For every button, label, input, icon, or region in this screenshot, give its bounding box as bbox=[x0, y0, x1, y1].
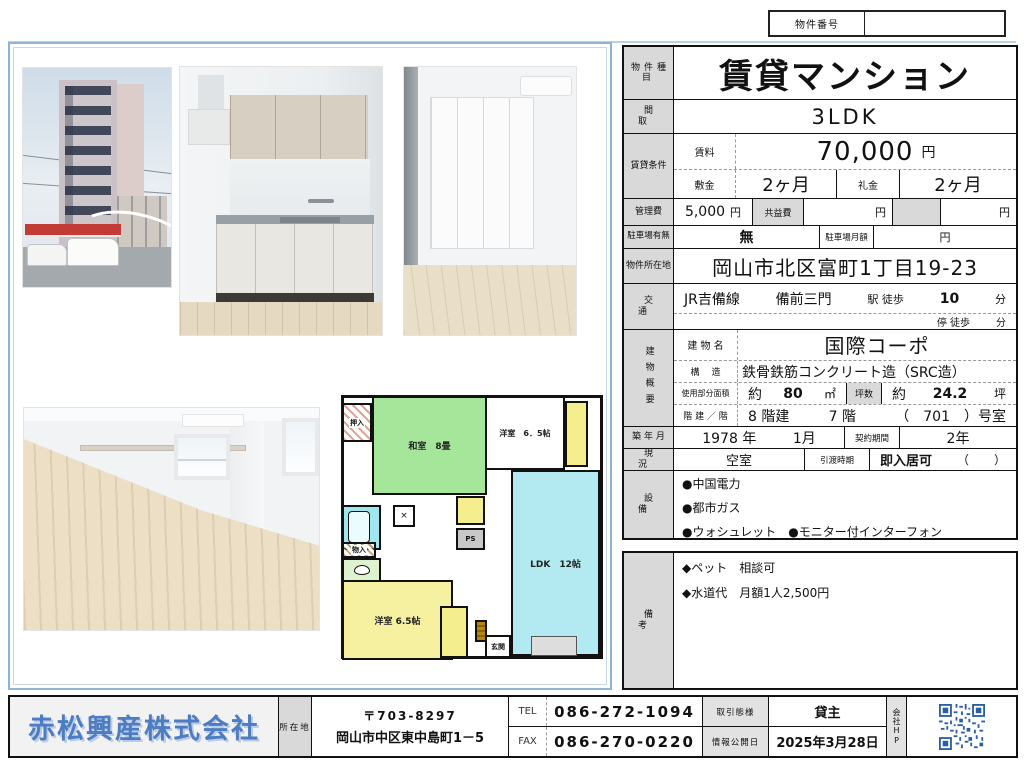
floor-plan: 和室 8畳 押入 洋室 6．5帖 LDK 12帖 × PS 物入 bbox=[341, 395, 603, 659]
floorplan-room-washitsu: 和室 8畳 bbox=[372, 396, 487, 495]
rent-label: 賃料 bbox=[674, 134, 736, 169]
parked-van bbox=[67, 238, 119, 266]
station-name: 備前三門 bbox=[776, 289, 832, 309]
common-fee-unit: 円 bbox=[804, 199, 892, 225]
base-cabinets bbox=[216, 224, 374, 302]
parking-monthly-label: 駐車場月額 bbox=[819, 226, 874, 248]
sink bbox=[280, 217, 340, 223]
empty-gray-cell bbox=[892, 199, 940, 225]
floorplan-room-western-top: 洋室 6．5帖 bbox=[485, 396, 565, 470]
building-overview-label: 建物概要 bbox=[624, 330, 674, 426]
stop-minutes-unit: 分 bbox=[996, 314, 1006, 329]
row-management-fee: 管理費 5,000 円 共益費 円 円 bbox=[624, 198, 1016, 225]
toilet-icon bbox=[354, 565, 370, 575]
management-fee-label: 管理費 bbox=[624, 199, 674, 225]
closet-doors bbox=[430, 97, 534, 249]
area-unit: ㎡ bbox=[824, 385, 836, 402]
minutes-unit: 分 bbox=[995, 291, 1006, 307]
washitsu-label: 和室 8畳 bbox=[408, 439, 450, 452]
floorplan-pipe-shaft: PS bbox=[456, 528, 485, 550]
property-type-label: 物件種目 bbox=[624, 47, 674, 99]
key-money-label: 礼金 bbox=[836, 170, 900, 198]
equipment-line: ●中国電力 bbox=[682, 475, 1008, 492]
ceiling bbox=[24, 408, 319, 421]
photo-empty-room bbox=[24, 408, 319, 630]
fax-number: 086-270-0220 bbox=[547, 727, 702, 756]
row-transport-stop: 停 徒歩 分 bbox=[674, 313, 1016, 329]
structure-value: 鉄骨鉄筋コンクリート造（SRC造） bbox=[738, 361, 1016, 383]
property-type-value: 賃貸マンション bbox=[674, 47, 1016, 99]
handover-paren-open: （ bbox=[957, 451, 969, 468]
tsubo-value: 24.2 bbox=[933, 386, 968, 402]
contract-value: 2年 bbox=[900, 427, 1016, 448]
agency-address-label: 所在地 bbox=[278, 697, 312, 756]
row-building-overview: 建物概要 建 物 名 国際コーポ 構造 鉄骨鉄筋コンクリート造（SRC造） 使用… bbox=[624, 329, 1016, 426]
remarks-line: ◆水道代 月額1人2,500円 bbox=[682, 584, 1008, 601]
handover-value-cell: 即入居可 （ ） bbox=[870, 449, 1016, 470]
station-walk-label: 駅 徒歩 bbox=[867, 291, 904, 307]
row-transport-line: JR吉備線 備前三門 駅 徒歩 10 分 bbox=[674, 284, 1016, 313]
layout-label: 間取 bbox=[624, 100, 674, 133]
row-equipment: 設備 ●中国電力 ●都市ガス ●ウォシュレット ●モニター付インターフォン bbox=[624, 470, 1016, 538]
fax-label: FAX bbox=[509, 727, 547, 756]
built-year: 1978 年 bbox=[702, 428, 756, 448]
floorplan-closet-bottom bbox=[440, 606, 468, 658]
floorplan-closet-oshiire: 押入 bbox=[342, 403, 372, 442]
floorplan-room-western-bottom: 洋室 6.5帖 bbox=[342, 580, 453, 660]
key-money-value: 2ヶ月 bbox=[900, 170, 1016, 198]
window bbox=[282, 418, 319, 476]
footer-agency-bar: 赤松興産株式会社 所在地 〒703-8297 岡山市中区東中島町1－5 TEL … bbox=[8, 695, 1018, 758]
management-fee-unit: 円 bbox=[730, 204, 741, 220]
photo-panel: 和室 8畳 押入 洋室 6．5帖 LDK 12帖 × PS 物入 bbox=[8, 42, 612, 690]
row-parking: 駐車場有無 無 駐車場月額 円 bbox=[624, 225, 1016, 248]
common-fee-label: 共益費 bbox=[752, 199, 804, 225]
row-area: 使用部分面積 約 80 ㎡ 坪数 約 24.2 坪 bbox=[674, 382, 1016, 404]
row-rent: 賃料 70,000 円 bbox=[674, 134, 1016, 169]
contract-label: 契約期間 bbox=[844, 427, 900, 448]
parked-van bbox=[27, 244, 67, 266]
property-number-label: 物件番号 bbox=[770, 12, 865, 35]
extra-fee-unit: 円 bbox=[940, 199, 1016, 225]
handover-value: 即入居可 bbox=[880, 450, 932, 469]
deal-info-block: 取引態様 貸主 情報公開日 2025年3月28日 bbox=[702, 697, 886, 756]
equipment-line: ●都市ガス bbox=[682, 499, 1008, 516]
floorplan-closet-strip bbox=[565, 401, 588, 467]
handover-paren-close: ） bbox=[994, 451, 1006, 468]
address-value: 岡山市北区富町1丁目19-23 bbox=[674, 249, 1016, 283]
ldk-label: LDK 12帖 bbox=[530, 557, 581, 570]
property-flyer-page: 物件番号 bbox=[0, 0, 1024, 766]
row-rental-conditions: 賃貸条件 賃料 70,000 円 敷金 2ヶ月 礼金 2ヶ月 bbox=[624, 133, 1016, 198]
company-hp-label: 会社HP bbox=[886, 697, 906, 756]
layout-value: 3LDK bbox=[674, 100, 1016, 133]
qr-code bbox=[939, 704, 985, 750]
publish-date-value: 2025年3月28日 bbox=[769, 727, 886, 756]
photo-room-closets bbox=[404, 67, 576, 335]
deal-type-label: 取引態様 bbox=[703, 697, 769, 726]
tsubo-value-cell: 約 24.2 坪 bbox=[882, 383, 1016, 404]
row-structure: 構造 鉄骨鉄筋コンクリート造（SRC造） bbox=[674, 360, 1016, 383]
floors-total: 8 階建 bbox=[748, 406, 789, 426]
equipment-label: 設備 bbox=[624, 471, 674, 538]
wood-floor bbox=[404, 265, 576, 335]
floorplan-toilet bbox=[342, 558, 381, 582]
status-label: 現況 bbox=[624, 449, 674, 470]
upper-cabinets bbox=[230, 95, 368, 159]
deal-type-row: 取引態様 貸主 bbox=[703, 697, 886, 726]
agency-address-cell: 〒703-8297 岡山市中区東中島町1－5 bbox=[312, 697, 508, 756]
publish-date-label: 情報公開日 bbox=[703, 727, 769, 756]
row-address: 物件所在地 岡山市北区富町1丁目19-23 bbox=[624, 248, 1016, 283]
row-building-name: 建 物 名 国際コーポ bbox=[674, 330, 1016, 360]
bathtub-icon bbox=[348, 511, 370, 543]
floors-value-cell: 8 階建 7 階 （ 701 ）号室 bbox=[738, 405, 1016, 426]
parking-monthly-unit: 円 bbox=[874, 226, 1016, 248]
building-name-label: 建 物 名 bbox=[674, 330, 738, 360]
publish-date-row: 情報公開日 2025年3月28日 bbox=[703, 726, 886, 756]
backsplash bbox=[230, 159, 370, 215]
floorplan-storage-chip bbox=[456, 496, 485, 525]
area-label: 使用部分面積 bbox=[674, 383, 738, 404]
wood-floor bbox=[24, 408, 319, 630]
management-fee-value: 5,000 bbox=[685, 204, 725, 220]
qr-code-cell bbox=[906, 697, 1016, 756]
row-floors: 階 建 ／ 階 8 階建 7 階 （ 701 ）号室 bbox=[674, 404, 1016, 426]
floorplan-storage-monoire: 物入 bbox=[342, 542, 376, 558]
stop-walk-label: 停 徒歩 bbox=[937, 314, 970, 329]
row-built: 築 年 月 1978 年 1月 契約期間 2年 bbox=[624, 426, 1016, 448]
tsubo-approx: 約 bbox=[892, 384, 906, 404]
tel-label: TEL bbox=[509, 697, 547, 726]
faucet bbox=[308, 199, 334, 203]
remarks-box: 備考 ◆ペット 相談可 ◆水道代 月額1人2,500円 bbox=[622, 551, 1018, 690]
station-walk-minutes: 10 bbox=[940, 291, 959, 307]
western-room-bottom-label: 洋室 6.5帖 bbox=[374, 614, 420, 627]
area-value-cell: 約 80 ㎡ bbox=[738, 383, 846, 404]
rent-value-cell: 70,000 円 bbox=[736, 134, 1016, 169]
photo-kitchen bbox=[180, 67, 382, 335]
rent-value: 70,000 bbox=[817, 137, 914, 167]
building-name-value: 国際コーポ bbox=[738, 330, 1016, 360]
floor-number: 7 階 bbox=[829, 406, 856, 426]
agency-phone-block: TEL 086-272-1094 FAX 086-270-0220 bbox=[508, 697, 702, 756]
equipment-line: ●ウォシュレット ●モニター付インターフォン bbox=[682, 523, 1008, 540]
photo-building-exterior bbox=[23, 68, 171, 287]
tel-row: TEL 086-272-1094 bbox=[509, 697, 702, 726]
ceiling-vent bbox=[182, 414, 244, 427]
floors-label: 階 建 ／ 階 bbox=[674, 405, 738, 426]
tsubo-unit: 坪 bbox=[994, 385, 1006, 402]
built-label: 築 年 月 bbox=[624, 427, 674, 448]
status-value: 空室 bbox=[674, 449, 804, 470]
ps-label: PS bbox=[464, 535, 476, 543]
property-number-value bbox=[865, 12, 1004, 35]
window bbox=[174, 434, 230, 480]
structure-label: 構造 bbox=[674, 361, 738, 383]
management-fee-cell: 5,000 円 bbox=[674, 199, 752, 225]
floorplan-washstand: × bbox=[393, 505, 415, 527]
tel-number: 086-272-1094 bbox=[547, 697, 702, 726]
area-value: 80 bbox=[783, 386, 802, 402]
deal-type-value: 貸主 bbox=[769, 697, 886, 726]
floorplan-room-ldk: LDK 12帖 bbox=[511, 470, 600, 656]
agency-name: 赤松興産株式会社 bbox=[10, 697, 278, 756]
built-value-cell: 1978 年 1月 bbox=[674, 427, 844, 448]
parking-label: 駐車場有無 bbox=[624, 226, 674, 248]
parking-value: 無 bbox=[674, 226, 819, 248]
room-number: （ 701 ）号室 bbox=[895, 406, 1006, 426]
handover-label: 引渡時期 bbox=[804, 449, 870, 470]
remarks-line: ◆ペット 相談可 bbox=[682, 559, 1008, 576]
built-month: 1月 bbox=[793, 428, 816, 448]
floorplan-entrance: 玄関 bbox=[485, 635, 511, 658]
western-room-top-label: 洋室 6．5帖 bbox=[499, 428, 550, 439]
remarks-label: 備考 bbox=[624, 553, 674, 688]
genkan-label: 玄関 bbox=[490, 642, 506, 652]
agency-address: 岡山市中区東中島町1－5 bbox=[336, 727, 484, 746]
area-approx: 約 bbox=[748, 384, 762, 404]
row-layout: 間取 3LDK bbox=[624, 99, 1016, 133]
deposit-label: 敷金 bbox=[674, 170, 736, 198]
row-property-type: 物件種目 賃貸マンション bbox=[624, 47, 1016, 99]
address-label: 物件所在地 bbox=[624, 249, 674, 283]
rail-line: JR吉備線 bbox=[684, 289, 740, 309]
tsubo-label: 坪数 bbox=[846, 383, 882, 404]
property-number-box: 物件番号 bbox=[768, 10, 1006, 37]
row-transport: 交通 JR吉備線 備前三門 駅 徒歩 10 分 停 徒歩 分 bbox=[624, 283, 1016, 329]
floorplan-balcony-item bbox=[531, 636, 577, 656]
fax-row: FAX 086-270-0220 bbox=[509, 726, 702, 756]
rental-conditions-label: 賃貸条件 bbox=[624, 134, 674, 198]
row-deposit-keymoney: 敷金 2ヶ月 礼金 2ヶ月 bbox=[674, 169, 1016, 198]
row-status: 現況 空室 引渡時期 即入居可 （ ） bbox=[624, 448, 1016, 470]
oshiire-label: 押入 bbox=[349, 418, 365, 428]
rent-unit: 円 bbox=[921, 142, 935, 162]
kitchen-floor bbox=[180, 302, 382, 335]
transport-label: 交通 bbox=[624, 284, 674, 329]
range-hood bbox=[188, 109, 230, 145]
air-conditioner bbox=[520, 76, 572, 96]
property-details-table: 物件種目 賃貸マンション 間取 3LDK 賃貸条件 賃料 70,000 円 敷金… bbox=[622, 45, 1018, 540]
monoire-label: 物入 bbox=[351, 545, 367, 555]
kitchen-vent-duct bbox=[198, 75, 224, 111]
deposit-value: 2ヶ月 bbox=[736, 170, 836, 198]
agency-postal-code: 〒703-8297 bbox=[363, 707, 456, 724]
